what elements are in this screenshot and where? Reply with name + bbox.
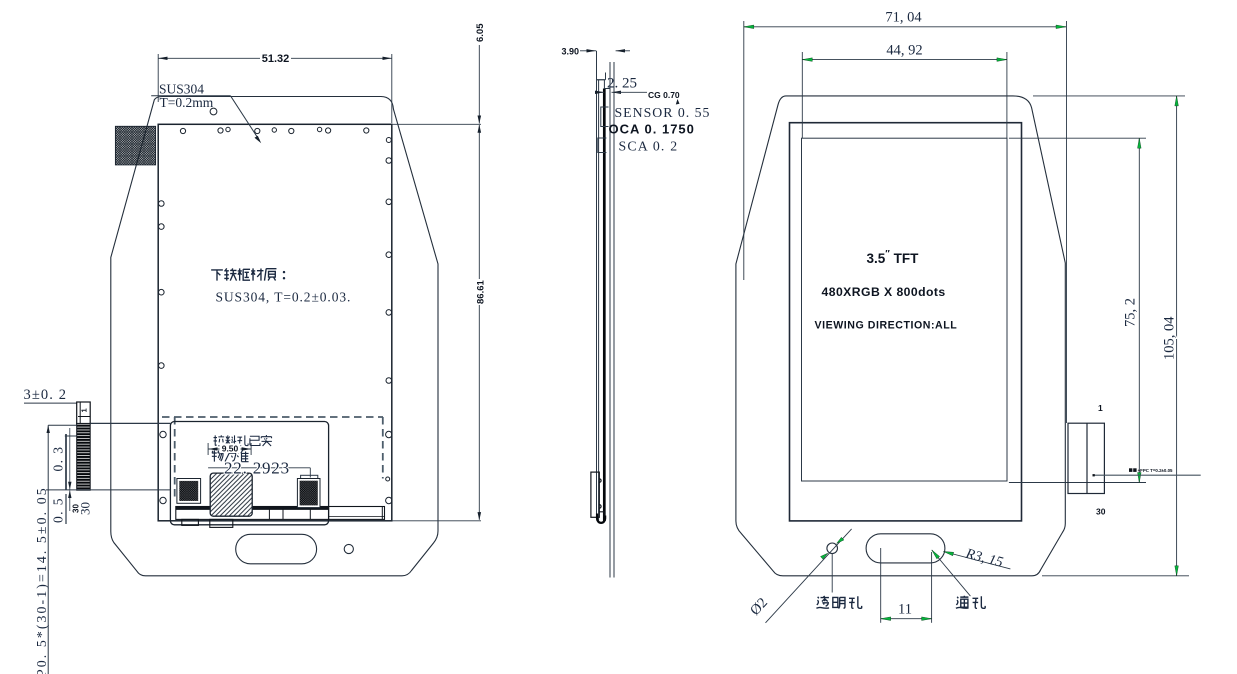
svg-text:11: 11 — [898, 602, 912, 618]
svg-text:1: 1 — [1098, 403, 1103, 413]
svg-text:3±0. 2: 3±0. 2 — [24, 387, 68, 403]
svg-text:T=0.2mm: T=0.2mm — [160, 95, 214, 110]
svg-text:75, 2: 75, 2 — [1123, 298, 1139, 327]
svg-text:105, 04: 105, 04 — [1162, 316, 1178, 360]
svg-text:OCA 0. 1750: OCA 0. 1750 — [609, 122, 695, 137]
svg-text:9.50: 9.50 — [222, 444, 239, 454]
svg-text:0. 5: 0. 5 — [51, 497, 66, 523]
svg-text:0. 3: 0. 3 — [51, 446, 66, 472]
svg-text:SENSOR 0. 55: SENSOR 0. 55 — [615, 105, 711, 120]
svg-text:86.61: 86.61 — [476, 280, 487, 304]
svg-text:1: 1 — [80, 408, 89, 412]
svg-text:51.32: 51.32 — [262, 53, 290, 65]
svg-text:CG 0.70: CG 0.70 — [648, 90, 680, 100]
svg-text:71, 04: 71, 04 — [885, 10, 922, 26]
svg-text:2. 25: 2. 25 — [607, 76, 637, 92]
svg-text:VIEWING DIRECTION:ALL: VIEWING DIRECTION:ALL — [815, 320, 958, 332]
svg-text:P0. 5*(30-1)=14. 5±0. 05: P0. 5*(30-1)=14. 5±0. 05 — [34, 486, 50, 674]
svg-text:480XRGB X 800dots: 480XRGB X 800dots — [822, 285, 946, 299]
svg-text:30: 30 — [1096, 507, 1106, 517]
svg-text:6.05: 6.05 — [475, 23, 486, 42]
svg-text:SCA 0. 2: SCA 0. 2 — [619, 139, 679, 154]
svg-text:SUS304, T=0.2±0.03.: SUS304, T=0.2±0.03. — [216, 290, 352, 305]
svg-text:22. 2923: 22. 2923 — [224, 459, 290, 478]
svg-text:30: 30 — [78, 502, 93, 515]
svg-text:44, 92: 44, 92 — [886, 43, 922, 59]
svg-text:3.5″ TFT: 3.5″ TFT — [867, 249, 920, 267]
svg-text:+FPC T=0.2±0.05: +FPC T=0.2±0.05 — [1138, 468, 1173, 473]
svg-text:3.90: 3.90 — [562, 47, 580, 57]
